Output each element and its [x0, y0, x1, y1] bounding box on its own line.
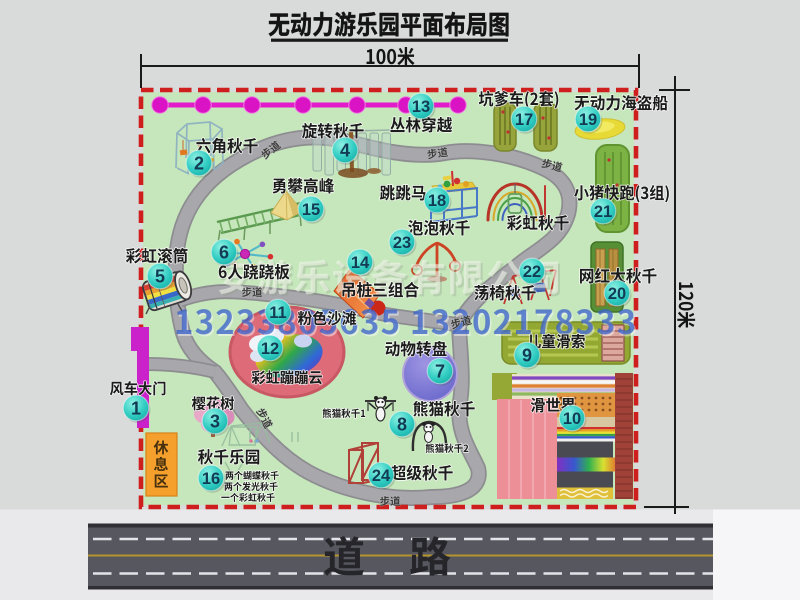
svg-text:24: 24	[372, 467, 391, 485]
svg-text:10: 10	[563, 410, 581, 428]
svg-text:17: 17	[515, 111, 533, 129]
svg-text:5: 5	[155, 266, 165, 286]
svg-text:6: 6	[219, 242, 229, 262]
svg-text:3: 3	[210, 411, 220, 431]
svg-text:13: 13	[412, 98, 430, 116]
svg-text:9: 9	[522, 345, 532, 365]
svg-text:15: 15	[302, 201, 320, 219]
svg-text:4: 4	[340, 140, 350, 160]
svg-text:21: 21	[594, 203, 612, 221]
svg-text:8: 8	[397, 414, 407, 434]
svg-text:23: 23	[393, 234, 411, 252]
svg-text:12: 12	[261, 340, 279, 358]
svg-text:18: 18	[428, 192, 446, 210]
svg-text:20: 20	[608, 285, 626, 303]
svg-text:1: 1	[131, 398, 141, 418]
svg-text:7: 7	[435, 361, 445, 381]
svg-text:16: 16	[202, 470, 220, 488]
svg-text:22: 22	[523, 263, 541, 281]
svg-text:19: 19	[579, 111, 597, 129]
svg-text:11: 11	[269, 304, 286, 322]
svg-text:2: 2	[194, 153, 204, 173]
svg-text:14: 14	[351, 254, 370, 272]
